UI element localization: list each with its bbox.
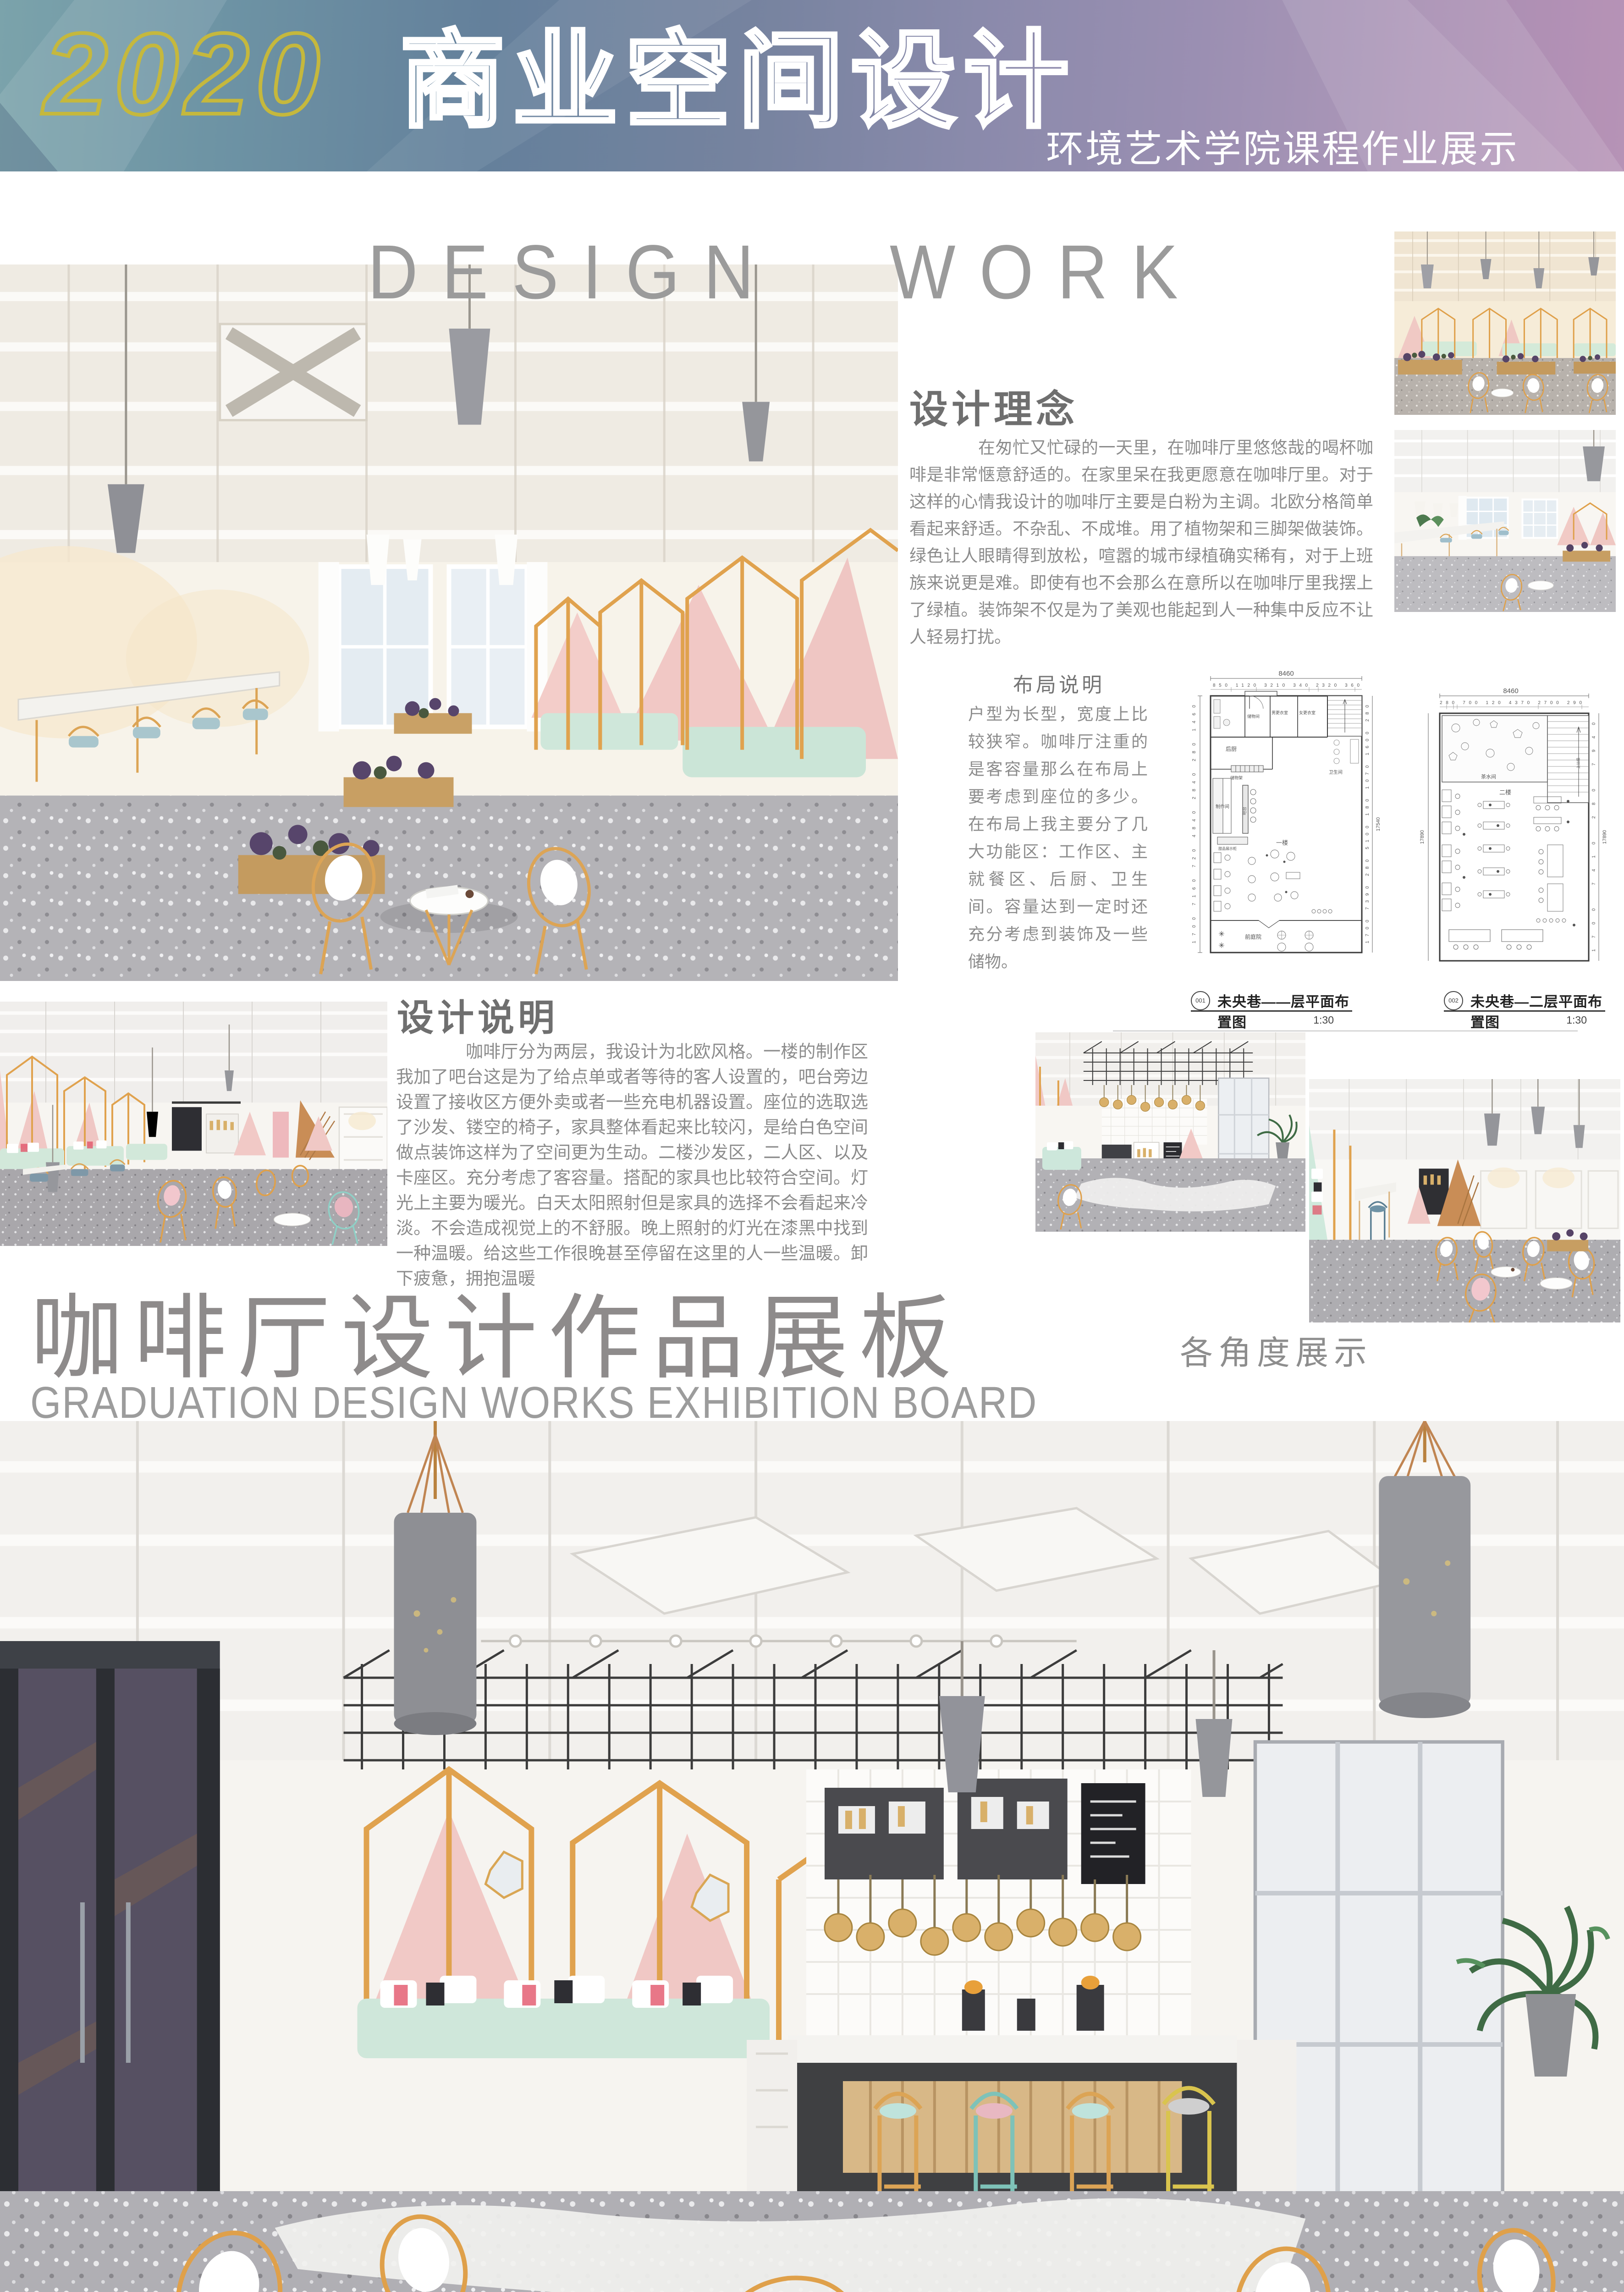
photo-top-right-2 [1394,430,1616,612]
photo-mid-left [0,1002,387,1246]
layout-note-heading: 布局说明 [969,668,1149,698]
render-dining-row [0,1002,387,1246]
render-panorama-bar [0,1421,1624,2292]
floor-plan-1-drawing: 8460 850 1120 3210 340 2320 360 1700 716… [1176,664,1405,985]
plan2-sheet-number: 002 [1444,991,1463,1010]
plan1-caption: 001 未央巷——层平面布置图 1:30 [1191,990,1352,1030]
svg-text:17890: 17890 [1420,830,1425,844]
floor-plan-1: 8460 850 1120 3210 340 2320 360 1700 716… [1176,664,1405,985]
svg-text:储物架: 储物架 [1230,775,1243,780]
svg-text:吧台: 吧台 [1242,807,1247,815]
svg-text:甜品展示柜: 甜品展示柜 [1218,846,1237,851]
plan1-sheet-number: 001 [1191,991,1210,1010]
render-second-floor [1309,1079,1620,1322]
design-work-heading: DESIGN WORK [368,228,1202,317]
svg-text:1700 7160 720 4840 284: 1700 7160 720 4840 2840 280 1460 [1192,705,1197,943]
svg-text:1700 7410 280 7940: 1700 7410 280 7940 [1591,722,1596,952]
svg-text:卫生间: 卫生间 [1329,769,1343,775]
render-bar-angle [1035,1032,1305,1232]
banner-subtitle: 环境艺术学院课程作业展示 [1046,118,1519,173]
svg-text:8460: 8460 [1278,670,1294,678]
svg-text:前庭院: 前庭院 [1245,933,1261,940]
plan1-scale: 1:30 [1313,1014,1334,1026]
svg-text:1700 7390 280 5100 180 1: 1700 7390 280 5100 180 1070 1600 280 [1365,705,1370,943]
svg-text:上11级: 上11级 [1576,758,1580,769]
plan2-caption: 002 未央巷—二层平面布置图 1:30 [1444,990,1605,1030]
render-booth-row [1394,231,1616,415]
angles-caption: 各角度展示 [1180,1326,1372,1374]
floor-plan-2: 8460 280 700 120 4370 2700 290 17890 170… [1396,664,1624,985]
svg-text:男更衣室: 男更衣室 [1272,710,1288,715]
svg-text:女更衣室: 女更衣室 [1299,710,1316,715]
plan2-scale: 1:30 [1566,1014,1587,1026]
svg-text:8460: 8460 [1503,687,1518,695]
svg-text:17890: 17890 [1602,830,1607,844]
plan1-caption-underline [1191,1010,1352,1012]
concept-heading: 设计理念 [909,379,1078,434]
layout-note-body: 户型为长型，宽度上比较狭窄。咖啡厅注重的是客容量那么在布局上要考虑到座位的多少。… [968,700,1148,975]
photo-angle-bar [1035,1032,1305,1232]
svg-text:17540: 17540 [1376,817,1381,832]
svg-text:850 1120 3210 340 2320 36: 850 1120 3210 340 2320 360 [1213,683,1360,688]
description-body: 咖啡厅分为两层，我设计为北欧风格。一楼的制作区我加了吧台这是为了给点单或者等待的… [396,1040,868,1292]
svg-text:储物间: 储物间 [1247,714,1260,719]
banner-title: 商业空间设计 [400,28,1076,134]
exhibition-poster: 2020 商业空间设计 环境艺术学院课程作业展示 DESIGN WORK [0,0,1624,2292]
render-counter-room [1394,430,1616,612]
svg-text:制作间: 制作间 [1216,804,1229,810]
concept-body: 在匆忙又忙碌的一天里，在咖啡厅里悠悠哉的喝杯咖啡是非常惬意舒适的。在家里呆在我更… [909,435,1373,651]
floor-plan-2-drawing: 8460 280 700 120 4370 2700 290 17890 170… [1396,664,1624,985]
banner-year: 2020 [44,17,326,132]
banner: 2020 商业空间设计 环境艺术学院课程作业展示 [0,0,1624,171]
photo-bottom-panorama [0,1421,1624,2292]
svg-text:一楼: 一楼 [1276,839,1288,846]
photo-angle-second-floor [1309,1079,1620,1322]
plans-divider-line [1113,1030,1578,1031]
svg-text:后厨: 后厨 [1226,746,1237,752]
description-heading: 设计说明 [397,988,558,1041]
photo-top-right-1 [1394,231,1616,415]
svg-text:280 700 120 4370 2700 290: 280 700 120 4370 2700 290 [1440,700,1582,705]
render-main-cafe [0,264,898,981]
plan2-caption-underline [1444,1010,1605,1012]
photo-main-interior [0,264,898,981]
svg-text:茶水间: 茶水间 [1481,774,1496,780]
svg-text:二楼: 二楼 [1499,789,1511,796]
